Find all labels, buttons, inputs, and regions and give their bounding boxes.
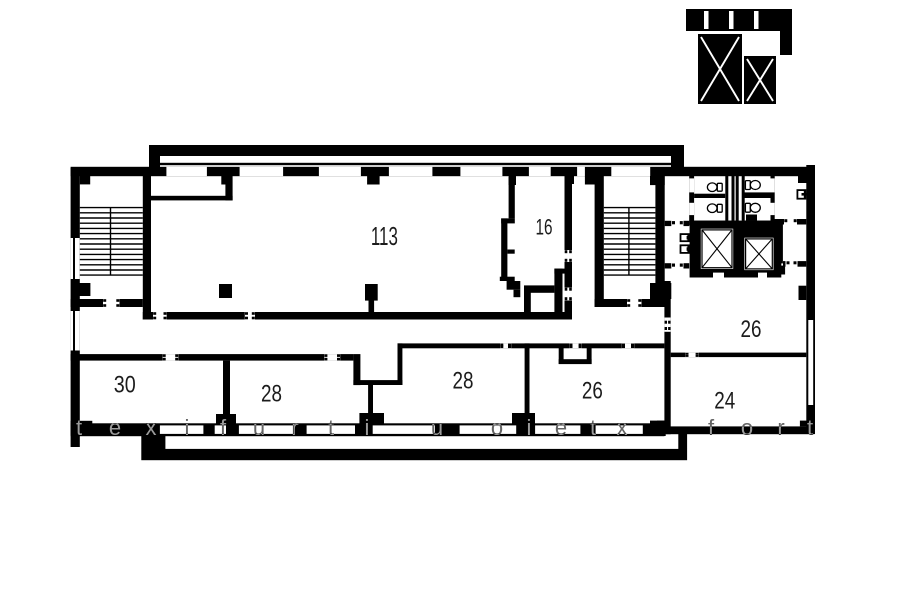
- svg-text:i: i: [185, 415, 190, 440]
- svg-text:26: 26: [741, 316, 762, 343]
- svg-text:26: 26: [582, 378, 603, 405]
- svg-text:28: 28: [453, 368, 474, 395]
- svg-text:f: f: [708, 415, 715, 440]
- svg-text:x: x: [617, 415, 628, 440]
- svg-text:28: 28: [261, 381, 282, 408]
- svg-text:r: r: [777, 415, 784, 440]
- svg-text:i: i: [365, 415, 370, 440]
- svg-text:o: o: [741, 415, 753, 440]
- svg-text:30: 30: [114, 372, 136, 399]
- svg-text:x: x: [146, 415, 157, 440]
- svg-text:113: 113: [371, 223, 398, 251]
- svg-text:24: 24: [714, 388, 735, 415]
- svg-text:e: e: [109, 415, 121, 440]
- svg-text:u: u: [253, 415, 265, 440]
- svg-text:e: e: [555, 415, 567, 440]
- svg-text:u: u: [431, 415, 443, 440]
- svg-text:16: 16: [536, 215, 553, 240]
- svg-text:o: o: [491, 415, 503, 440]
- svg-text:r: r: [291, 415, 298, 440]
- svg-text:i: i: [527, 415, 532, 440]
- svg-text:f: f: [220, 415, 227, 440]
- svg-text:t: t: [328, 415, 334, 440]
- svg-text:t: t: [76, 415, 82, 440]
- svg-text:t: t: [590, 415, 596, 440]
- svg-text:t: t: [807, 415, 813, 440]
